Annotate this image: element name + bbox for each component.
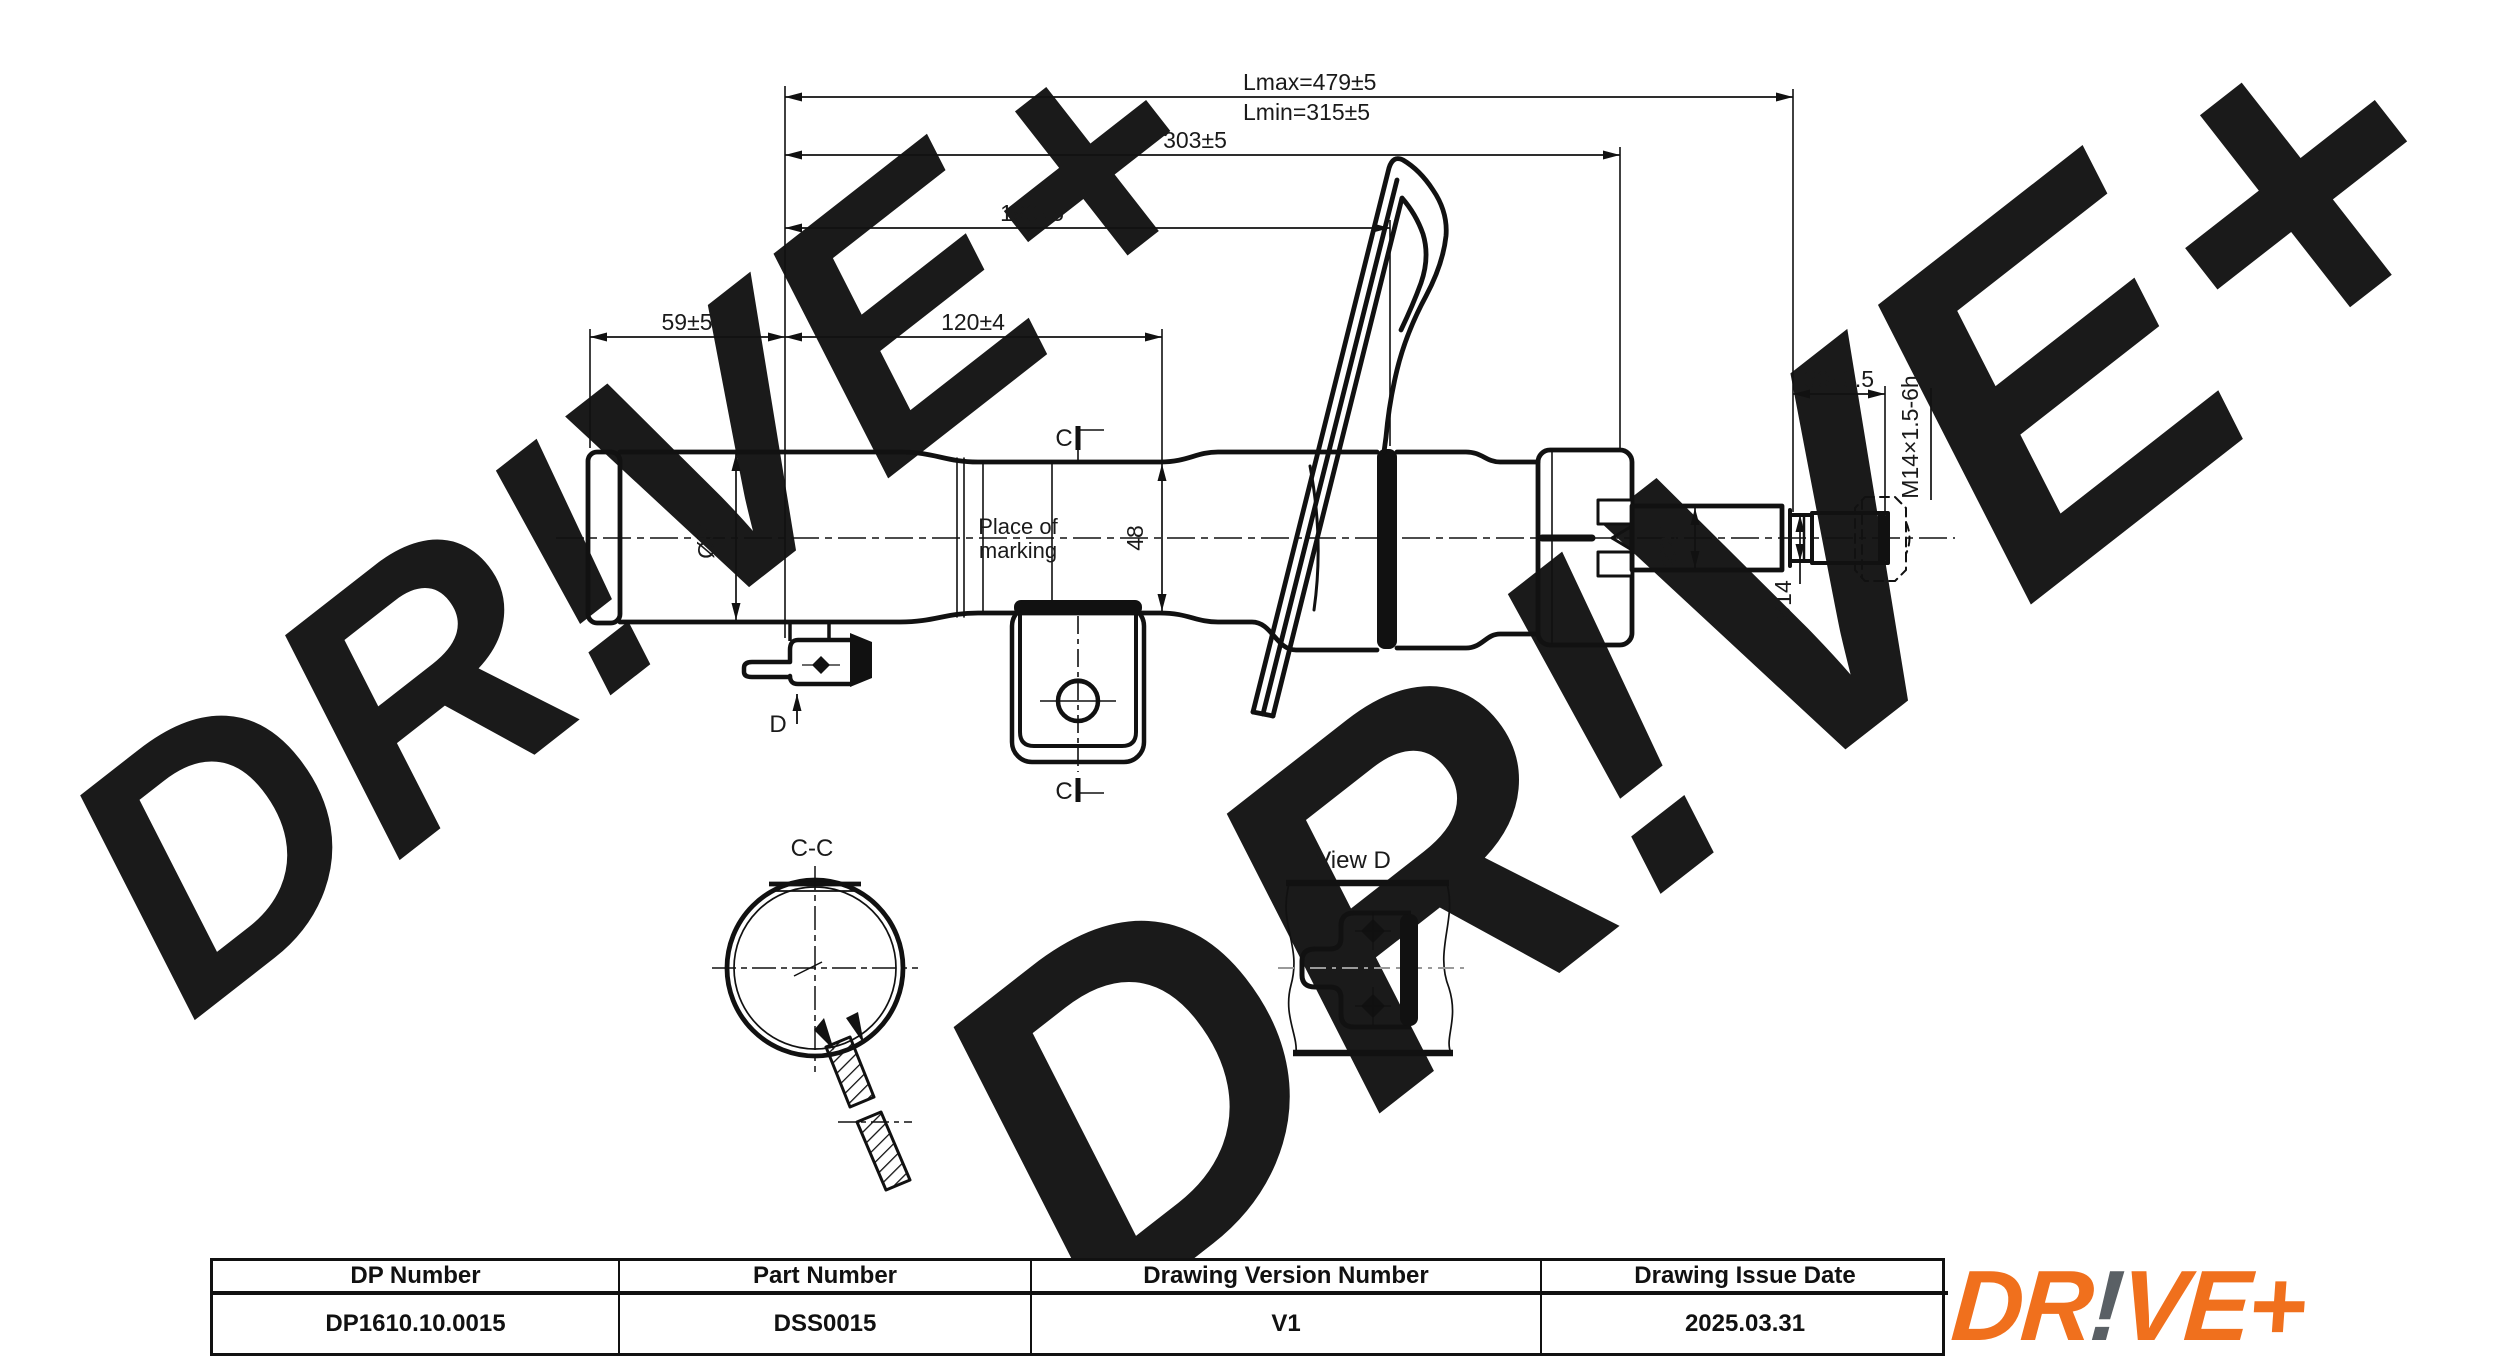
brand-logo: DR!VE+ <box>1949 1258 2486 1354</box>
dim-label-59: 59±5 <box>662 309 713 335</box>
title-block-table: DP Number Part Number Drawing Version Nu… <box>210 1258 1945 1356</box>
dim-label-dia20: Ø20 <box>1655 523 1681 566</box>
table-value-dp-number: DP1610.10.0015 <box>213 1295 618 1353</box>
dim-label-dia51: Ø51 <box>693 515 719 558</box>
table-header-issue-date: Drawing Issue Date <box>1540 1261 1948 1295</box>
gland-notch <box>1598 500 1632 524</box>
cc-weld-left <box>814 1018 834 1050</box>
dim-label-303: 303±5 <box>1163 127 1227 153</box>
clamp-weld-band <box>1014 600 1142 615</box>
section-c-top-label: C <box>1055 425 1072 452</box>
table-header-dp-number: DP Number <box>213 1261 618 1295</box>
section-c-bottom-label: C <box>1055 778 1072 805</box>
logo-text-dr: DR <box>1948 1249 2094 1359</box>
table-header-drawing-version: Drawing Version Number <box>1030 1261 1540 1295</box>
marking-label-line2: marking <box>979 538 1057 563</box>
thread-end <box>1878 513 1890 563</box>
cc-arm-lower <box>857 1112 910 1190</box>
dim-label-thread: M14×1.5-6h <box>1897 375 1923 498</box>
logo-text-ve-plus: VE+ <box>2117 1249 2308 1359</box>
strut-technical-drawing: DR!VE+ DR!VE+ <box>0 0 2500 1359</box>
dim-label-lmax: Lmax=479±5 <box>1243 69 1376 95</box>
section-cc-title: C-C <box>791 835 834 862</box>
dim-label-48: 48 <box>1122 525 1148 551</box>
cc-center-tick <box>794 962 822 976</box>
spring-seat-band <box>1377 449 1397 649</box>
table-value-drawing-version: V1 <box>1030 1295 1540 1353</box>
watermark-group: DR!VE+ DR!VE+ <box>0 0 2500 1359</box>
gland-notch <box>1598 552 1632 576</box>
dim-label-lmin: Lmin=315±5 <box>1243 99 1370 125</box>
table-value-part-number: DSS0015 <box>618 1295 1030 1353</box>
marking-label-line1: Place of <box>978 514 1058 539</box>
view-d-letter: D <box>769 711 786 738</box>
drawing-sheet: DR!VE+ DR!VE+ <box>0 0 2500 1359</box>
dim-label-dia14: Ø14 <box>1770 580 1796 624</box>
dim-label-190: 190±5 <box>1000 200 1064 226</box>
viewd-clip-bar <box>1400 914 1418 1026</box>
table-header-part-number: Part Number <box>618 1261 1030 1295</box>
table-value-issue-date: 2025.03.31 <box>1540 1295 1948 1353</box>
dim-label-120: 120±4 <box>941 309 1005 335</box>
lug-clip <box>850 633 872 687</box>
dim-label-30: 30±0.5 <box>1804 366 1874 392</box>
view-d-title: View D <box>1315 847 1391 874</box>
